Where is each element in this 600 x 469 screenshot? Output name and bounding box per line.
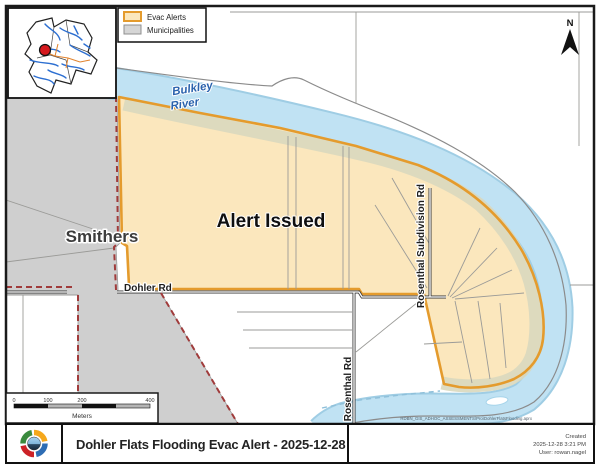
- scale-tick-0: 0: [12, 398, 15, 404]
- legend: Evac Alerts Municipalities: [118, 8, 206, 42]
- rosenthal-rd-label: Rosenthal Rd: [343, 357, 354, 421]
- legend-swatch-evac-alerts: [124, 12, 141, 21]
- scale-tick-200: 200: [77, 398, 86, 404]
- footer-banner: Dohler Flats Flooding Evac Alert - 2025-…: [6, 424, 594, 463]
- created-user: User: rowan.nagel: [539, 450, 586, 456]
- map-canvas: Smithers Alert Issued Bulkley River Dohl…: [0, 0, 600, 469]
- map-title: Dohler Flats Flooding Evac Alert - 2025-…: [76, 437, 345, 452]
- scale-bar: 0 100 200 400 Meters: [6, 393, 158, 423]
- map-credit-text: RDBN_GIS_ADHOC_ASSESSMENTS\Pro\DohlerFla…: [400, 416, 532, 421]
- legend-swatch-municipalities: [124, 25, 141, 34]
- legend-label-municipalities: Municipalities: [147, 26, 194, 35]
- evac-alert-map-page: Smithers Alert Issued Bulkley River Dohl…: [0, 0, 600, 469]
- inset-locator-map: [8, 8, 116, 98]
- legend-label-evac-alerts: Evac Alerts: [147, 13, 186, 22]
- north-arrow-label: N: [567, 18, 574, 29]
- created-datetime: 2025-12-28 3:21 PM: [533, 442, 586, 448]
- alert-status-label: Alert Issued: [217, 211, 326, 232]
- scale-tick-400: 400: [145, 398, 154, 404]
- location-marker-dot: [40, 45, 51, 56]
- dohler-rd-label: Dohler Rd: [124, 283, 172, 294]
- scale-tick-100: 100: [43, 398, 52, 404]
- created-label: Created: [565, 434, 586, 440]
- city-label: Smithers: [66, 227, 139, 246]
- rosenthal-subdivision-rd-label: Rosenthal Subdivision Rd: [416, 184, 427, 308]
- scale-unit-label: Meters: [72, 413, 93, 420]
